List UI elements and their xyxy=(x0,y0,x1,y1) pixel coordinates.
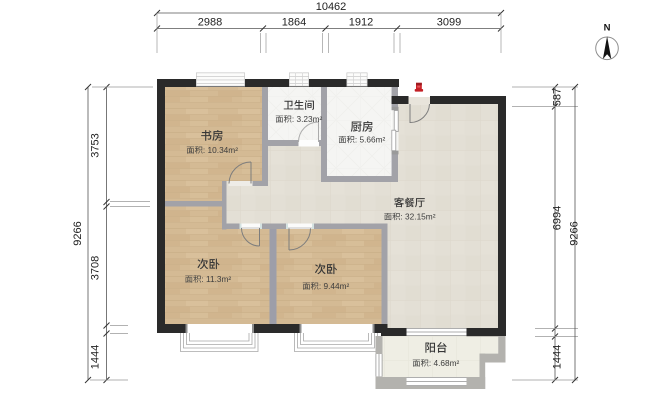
svg-text:587: 587 xyxy=(552,88,564,106)
svg-text:1912: 1912 xyxy=(349,17,373,29)
svg-text:9266: 9266 xyxy=(569,221,581,245)
svg-text:3708: 3708 xyxy=(90,256,102,280)
svg-text:N: N xyxy=(604,23,611,34)
svg-text:1444: 1444 xyxy=(552,345,564,369)
svg-text:: 10.34m²: : 10.34m² xyxy=(203,145,238,155)
svg-text:1444: 1444 xyxy=(90,345,102,369)
svg-text:: 3.23m²: : 3.23m² xyxy=(292,114,323,124)
svg-text:: 11.3m²: : 11.3m² xyxy=(201,274,231,284)
svg-text:: 9.44m²: : 9.44m² xyxy=(319,281,350,291)
svg-text:10462: 10462 xyxy=(316,1,347,13)
svg-text:1864: 1864 xyxy=(282,17,306,29)
svg-text:: 32.15m²: : 32.15m² xyxy=(400,211,435,221)
svg-text:: 4.68m²: : 4.68m² xyxy=(429,358,460,368)
svg-text:2988: 2988 xyxy=(198,17,222,29)
svg-text:3753: 3753 xyxy=(90,133,102,157)
svg-text:9266: 9266 xyxy=(72,221,84,245)
svg-text:: 5.66m²: : 5.66m² xyxy=(355,134,386,144)
svg-text:3099: 3099 xyxy=(437,17,461,29)
svg-text:6994: 6994 xyxy=(552,206,564,230)
